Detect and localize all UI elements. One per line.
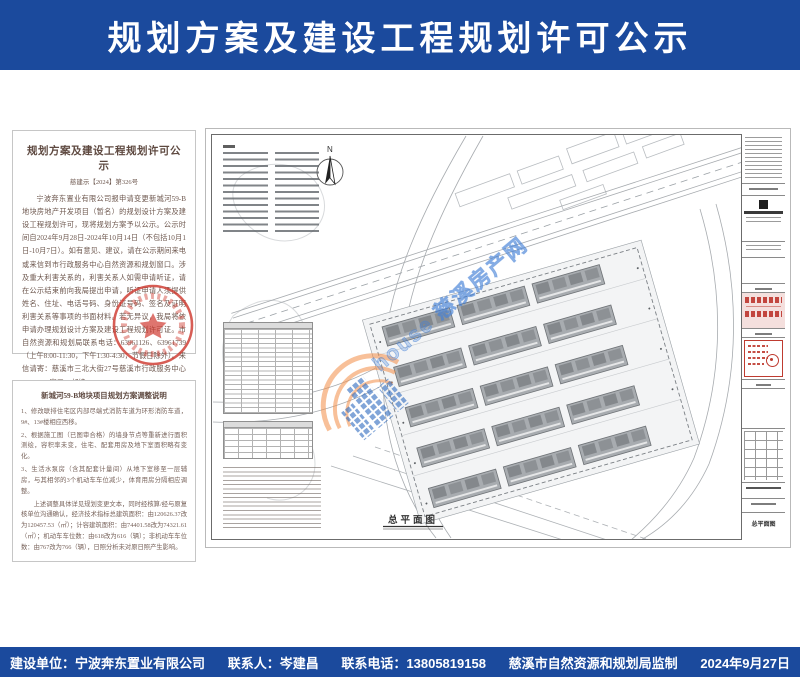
titleblock-cell [742,258,785,284]
plan-label: 总平面图 [388,514,438,526]
subproject-cell [742,499,785,513]
legend-block [223,145,319,239]
titleblock-cell [742,242,785,258]
adjustment-summary: 上述调整具体详见规划变更文本，同时经核算/经与原复核单位沟通确认，经济技术指标总… [21,500,187,554]
permit-stamp-icon [742,338,785,380]
north-label: N [327,145,333,154]
estate-buildings [362,240,699,524]
adjustment-item: 1、修改联排住宅区内部尽端式消防车道为环形消防车道，9#、13#楼相应西移。 [21,407,187,429]
footer-contact-phone: 联系电话：13805819158 [341,653,486,672]
titleblock-cell [742,329,785,338]
titleblock-cell [742,284,785,293]
red-approval-stamp-icon [742,293,785,329]
adjustment-item: 2、根据施工图（已图审合格）的墙身节点等重新进行面积测绘，容积率未变，住宅、配套… [21,431,187,463]
signature-grid [742,429,785,483]
footer-date: 2024年9月27日 [700,653,790,672]
footer-contact-person: 联系人：岑建昌 [228,653,319,672]
header-banner: 规划方案及建设工程规划许可公示 [0,0,800,70]
official-seal-icon [109,281,197,369]
titleblock-cell [742,389,785,429]
notice-letter: 规划方案及建设工程规划许可公示 慈建示【2024】第326号 宁波奔东置业有限公… [12,130,196,354]
titleblock-cell [742,184,785,196]
site-plan-sheet: N house 慈溪房产网 总平面图 [205,128,791,548]
design-institute-logo [742,196,785,242]
footer-supervisor: 慈溪市自然资源和规划局监制 [509,653,678,672]
page-title: 规划方案及建设工程规划许可公示 [108,11,693,60]
plan-notes [223,467,321,531]
indicator-table [223,322,313,414]
titleblock-notes [742,134,785,184]
north-arrow-icon: N [317,145,343,185]
adjustment-item: 3、生活水泵房（含其配套计量间）从地下室移至一层辅房，与其相邻的3个机动车车位减… [21,465,187,497]
title-block: 总平面图 [741,134,785,540]
parking-table [223,421,313,459]
project-name-cell [742,483,785,499]
drawing-name-cell: 总平面图 [742,513,785,540]
context-buildings [454,134,691,242]
adjustment-title: 新城河59-B地块项目规划方案调整说明 [21,390,187,401]
titleblock-cell [742,380,785,389]
notice-doc-number: 慈建示【2024】第326号 [22,176,186,186]
plan-caption: 总平面图 [383,514,443,529]
footer-bar: 建设单位：宁波奔东置业有限公司 联系人：岑建昌 联系电话：13805819158… [0,647,800,677]
footer-builder: 建设单位：宁波奔东置业有限公司 [10,653,205,672]
notice-title: 规划方案及建设工程规划许可公示 [22,143,186,173]
adjustment-notes: 新城河59-B地块项目规划方案调整说明 1、修改联排住宅区内部尽端式消防车道为环… [12,380,196,562]
